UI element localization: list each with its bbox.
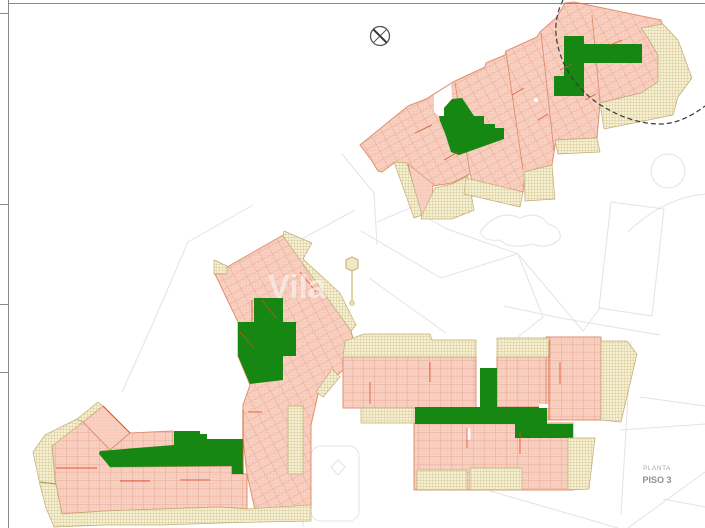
- svg-text:PISO 3: PISO 3: [642, 475, 671, 485]
- svg-text:PLANTA: PLANTA: [643, 465, 671, 472]
- svg-text:Vila: Vila: [268, 268, 327, 305]
